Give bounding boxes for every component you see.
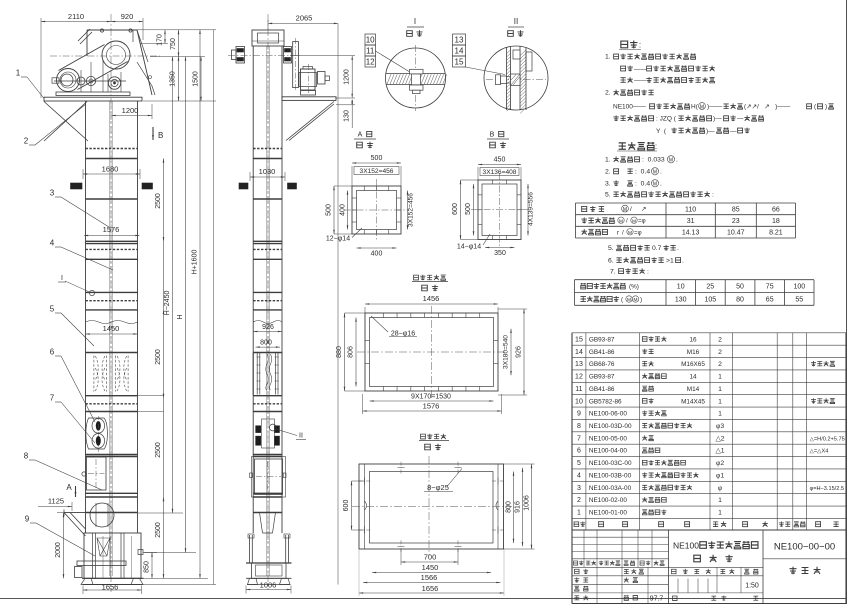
svg-text:926: 926 — [262, 324, 274, 331]
svg-text:M: M — [632, 218, 636, 224]
svg-text:φ3: φ3 — [716, 423, 724, 430]
svg-text:/: / — [630, 206, 632, 213]
svg-text:: 0.4: : 0.4 — [635, 169, 650, 176]
svg-text:0.7: 0.7 — [652, 245, 662, 252]
svg-text:↗: ↗ — [641, 206, 646, 213]
svg-text:NE100-03A-00: NE100-03A-00 — [589, 485, 632, 492]
svg-text:880: 880 — [336, 346, 343, 358]
svg-text:1: 1 — [718, 398, 722, 405]
svg-text:II: II — [514, 17, 518, 26]
svg-text:14−φ14: 14−φ14 — [457, 244, 481, 251]
svg-text:65: 65 — [766, 296, 774, 303]
svg-text:105: 105 — [704, 296, 716, 303]
svg-text:8−φ25: 8−φ25 — [427, 483, 449, 492]
svg-text:2500: 2500 — [155, 522, 162, 538]
svg-text:8: 8 — [577, 423, 581, 430]
svg-text::: : — [639, 41, 641, 50]
svg-text:6: 6 — [577, 448, 581, 455]
svg-text:——: —— — [634, 66, 647, 73]
svg-text:1200: 1200 — [344, 69, 351, 85]
svg-text:1: 1 — [718, 411, 722, 418]
svg-text:9X170=1530: 9X170=1530 — [411, 394, 451, 401]
svg-text:M: M — [653, 182, 657, 188]
svg-text:): ) — [825, 104, 827, 111]
svg-text:13: 13 — [455, 36, 464, 45]
svg-text:——: —— — [634, 77, 647, 84]
svg-text:23: 23 — [732, 218, 740, 225]
svg-text:1:50: 1:50 — [745, 583, 759, 590]
svg-text:φ=H−3.15/2.5: φ=H−3.15/2.5 — [810, 486, 844, 492]
svg-text:806: 806 — [348, 346, 355, 358]
svg-text:1456: 1456 — [423, 294, 440, 303]
svg-text:16: 16 — [689, 336, 697, 343]
svg-text:NE100: NE100 — [673, 541, 699, 551]
svg-text:=φ: =φ — [638, 218, 646, 225]
svg-text:H+1600: H+1600 — [192, 250, 199, 275]
svg-text:1125: 1125 — [48, 497, 64, 506]
svg-text:800: 800 — [260, 340, 272, 347]
svg-text:1006: 1006 — [260, 581, 277, 590]
svg-text:NE100——: NE100—— — [613, 104, 646, 111]
svg-text:110: 110 — [685, 206, 696, 213]
svg-text:3: 3 — [50, 189, 55, 198]
svg-text:15: 15 — [575, 336, 583, 343]
svg-text:1: 1 — [577, 510, 581, 517]
svg-text:1: 1 — [718, 510, 722, 517]
svg-text:7: 7 — [50, 394, 55, 403]
svg-text:M: M — [653, 170, 657, 176]
svg-text:350: 350 — [494, 250, 506, 257]
svg-text:r: r — [617, 229, 619, 236]
svg-text:GB5782-86: GB5782-86 — [589, 398, 622, 405]
svg-text:3X136=408: 3X136=408 — [483, 169, 517, 176]
svg-text:NE100-03C-00: NE100-03C-00 — [589, 460, 632, 467]
svg-text:2: 2 — [718, 349, 722, 356]
svg-text:2065: 2065 — [296, 14, 313, 23]
svg-text:II: II — [299, 433, 303, 440]
svg-text:3: 3 — [577, 485, 581, 492]
svg-text:1576: 1576 — [103, 225, 120, 234]
svg-text:2: 2 — [24, 137, 29, 146]
svg-text:4: 4 — [50, 239, 55, 248]
svg-text:): ) — [640, 296, 642, 303]
svg-text:.: . — [676, 157, 678, 164]
svg-text:△2: △2 — [715, 435, 724, 442]
svg-text:12: 12 — [366, 58, 375, 67]
svg-text:1.: 1. — [605, 54, 611, 61]
svg-text:B: B — [490, 132, 495, 139]
svg-text:920: 920 — [121, 12, 134, 21]
svg-text:750: 750 — [170, 38, 177, 50]
svg-text:M: M — [634, 297, 638, 303]
svg-text:600: 600 — [452, 203, 459, 215]
svg-text:15: 15 — [455, 58, 464, 67]
svg-text:500: 500 — [326, 204, 333, 216]
svg-text:1656: 1656 — [102, 582, 119, 591]
svg-text:10: 10 — [575, 398, 583, 405]
svg-text:1566: 1566 — [421, 573, 438, 582]
svg-text:1: 1 — [718, 374, 722, 381]
svg-text:800: 800 — [506, 501, 513, 513]
svg-text:80: 80 — [736, 296, 744, 303]
svg-text:M: M — [627, 297, 631, 303]
svg-text:—: — — [737, 116, 744, 123]
svg-text:12: 12 — [575, 374, 583, 381]
svg-text:500: 500 — [371, 155, 383, 162]
svg-text:170: 170 — [157, 34, 164, 46]
svg-text:NE100-05-00: NE100-05-00 — [589, 435, 627, 442]
svg-text:7.: 7. — [610, 268, 616, 275]
svg-text:130: 130 — [344, 110, 351, 122]
svg-text:NE100-01-00: NE100-01-00 — [589, 510, 627, 517]
svg-text::: : — [647, 268, 649, 275]
svg-text:600: 600 — [343, 500, 350, 512]
svg-text:1: 1 — [16, 69, 21, 78]
svg-text:9: 9 — [577, 411, 581, 418]
svg-text:9: 9 — [25, 515, 30, 524]
svg-text:500: 500 — [465, 203, 472, 215]
svg-text:14: 14 — [455, 47, 464, 56]
svg-text:55: 55 — [795, 296, 803, 303]
svg-text:/: / — [626, 218, 628, 225]
svg-text:850: 850 — [144, 561, 151, 573]
svg-text:GB41-86: GB41-86 — [589, 349, 615, 356]
svg-text:)——: )—— — [707, 104, 723, 111]
svg-text:: JZQ (: : JZQ ( — [656, 116, 677, 123]
svg-text:(%): (%) — [629, 283, 639, 290]
svg-text:△=H/0.2+5.75: △=H/0.2+5.75 — [810, 436, 845, 442]
svg-text:I: I — [414, 17, 416, 26]
svg-text:.: . — [660, 181, 662, 188]
svg-text:.: . — [677, 245, 679, 252]
svg-text:)—: )— — [713, 116, 722, 123]
svg-text:GB68-76: GB68-76 — [589, 361, 615, 368]
svg-text:φ1: φ1 — [716, 472, 724, 479]
svg-text:GB93-87: GB93-87 — [589, 374, 615, 381]
svg-text:130: 130 — [675, 296, 687, 303]
svg-text:5.: 5. — [605, 192, 611, 199]
svg-text:NE100−00−00: NE100−00−00 — [774, 542, 835, 553]
svg-text:1200: 1200 — [122, 106, 139, 115]
svg-text:2500: 2500 — [155, 442, 162, 458]
svg-text:10: 10 — [677, 284, 685, 291]
svg-text:1: 1 — [718, 497, 722, 504]
svg-text:H(: H( — [691, 104, 699, 111]
svg-text:4X139=556: 4X139=556 — [528, 192, 535, 226]
svg-text:13: 13 — [575, 361, 583, 368]
svg-text:M: M — [700, 104, 704, 110]
svg-text:2500: 2500 — [155, 349, 162, 365]
svg-text:4: 4 — [577, 472, 581, 479]
svg-text:M14: M14 — [687, 386, 700, 393]
svg-text:H−2450: H−2450 — [164, 291, 171, 316]
svg-text:3.: 3. — [605, 181, 611, 188]
svg-text:.: . — [660, 169, 662, 176]
svg-text:1: 1 — [718, 386, 722, 393]
svg-text:A: A — [358, 132, 363, 139]
svg-text:φ: φ — [718, 485, 723, 492]
svg-text:NE100-02-00: NE100-02-00 — [589, 497, 627, 504]
svg-text:50: 50 — [736, 284, 744, 291]
svg-text:450: 450 — [494, 157, 506, 164]
svg-text:=φ: =φ — [634, 229, 642, 236]
svg-text:31: 31 — [687, 218, 695, 225]
svg-text:14: 14 — [575, 349, 583, 356]
svg-text:2110: 2110 — [68, 12, 84, 21]
svg-text:M: M — [623, 207, 627, 213]
svg-text:M16: M16 — [687, 349, 700, 356]
svg-text:700: 700 — [424, 553, 437, 562]
svg-text:12−φ14: 12−φ14 — [326, 236, 350, 243]
svg-text:φ2: φ2 — [716, 460, 724, 467]
svg-text:>1: >1 — [666, 257, 674, 264]
svg-text:8.21: 8.21 — [769, 230, 783, 237]
svg-text:2.: 2. — [605, 90, 611, 97]
svg-text:1500: 1500 — [193, 71, 200, 87]
svg-text:97.7: 97.7 — [650, 595, 664, 602]
svg-text:1.: 1. — [605, 157, 611, 164]
svg-text:3X152=456: 3X152=456 — [408, 193, 415, 227]
svg-text:NE100-04-00: NE100-04-00 — [589, 448, 627, 455]
svg-text:1006: 1006 — [524, 495, 531, 511]
svg-text:—: — — [730, 128, 737, 135]
svg-text:2000: 2000 — [55, 542, 62, 558]
svg-text::: : — [712, 192, 714, 199]
svg-text:)—: )— — [706, 128, 715, 135]
svg-text:8: 8 — [24, 452, 29, 461]
svg-text:1030: 1030 — [259, 167, 276, 176]
svg-text:6: 6 — [50, 348, 55, 357]
svg-text:3X152=456: 3X152=456 — [360, 168, 394, 175]
svg-text:△1: △1 — [715, 448, 724, 455]
svg-text:GB93-87: GB93-87 — [589, 336, 615, 343]
svg-text:2: 2 — [718, 336, 722, 343]
svg-text:M16X65: M16X65 — [681, 361, 705, 368]
svg-text:NE100-06-00: NE100-06-00 — [589, 411, 627, 418]
svg-text:926: 926 — [516, 346, 523, 358]
svg-text:.: . — [682, 257, 684, 264]
svg-text:A: A — [66, 483, 72, 492]
svg-text:85: 85 — [732, 206, 740, 213]
svg-text:△=△X4: △=△X4 — [810, 449, 829, 455]
svg-text:: 0.4: : 0.4 — [635, 181, 650, 188]
svg-text:NE100-03D-00: NE100-03D-00 — [589, 423, 632, 430]
svg-text:11: 11 — [575, 386, 582, 393]
svg-text:GB41-86: GB41-86 — [589, 386, 615, 393]
svg-text:M: M — [628, 230, 632, 236]
svg-text:5.: 5. — [608, 245, 614, 252]
svg-text:1450: 1450 — [422, 563, 439, 572]
svg-text:1680: 1680 — [102, 165, 119, 174]
svg-text:2: 2 — [718, 361, 722, 368]
svg-text:11: 11 — [366, 47, 375, 56]
svg-text:: 0.033: : 0.033 — [642, 157, 665, 164]
svg-text:916: 916 — [515, 501, 522, 513]
svg-text:3X180=540: 3X180=540 — [503, 335, 510, 369]
svg-text:5: 5 — [50, 305, 55, 314]
svg-text:14.13: 14.13 — [682, 230, 700, 237]
svg-text:2: 2 — [577, 497, 581, 504]
svg-text:400: 400 — [371, 251, 383, 258]
svg-text:I: I — [61, 275, 63, 282]
svg-text::: : — [655, 142, 657, 151]
svg-text:14: 14 — [689, 374, 697, 381]
svg-text:Y (: Y ( — [656, 128, 667, 135]
svg-text:7: 7 — [577, 435, 581, 442]
svg-text:66: 66 — [772, 206, 780, 213]
svg-text:75: 75 — [766, 284, 774, 291]
svg-text:H: H — [177, 314, 184, 319]
svg-text:M: M — [669, 158, 673, 164]
svg-text:2.: 2. — [605, 169, 611, 176]
svg-text:2500: 2500 — [155, 193, 162, 209]
svg-text:25: 25 — [706, 284, 714, 291]
svg-text:(↗↗/ ↗ )——: (↗↗/ ↗ )—— — [744, 104, 791, 111]
svg-text:M: M — [619, 218, 623, 224]
svg-text:400: 400 — [340, 204, 347, 216]
svg-text:/: / — [622, 229, 624, 236]
svg-text:1656: 1656 — [422, 584, 439, 593]
svg-text:NE100-03B-00: NE100-03B-00 — [589, 472, 632, 479]
svg-text:1450: 1450 — [103, 324, 120, 333]
svg-text:18: 18 — [772, 218, 780, 225]
svg-text:6.: 6. — [608, 257, 614, 264]
svg-text:M14X45: M14X45 — [681, 398, 705, 405]
svg-text:10: 10 — [366, 36, 375, 45]
svg-text:B: B — [158, 131, 163, 140]
svg-text:1576: 1576 — [423, 402, 440, 411]
svg-text:100: 100 — [793, 284, 805, 291]
svg-text:5: 5 — [577, 460, 581, 467]
svg-text:10.47: 10.47 — [727, 230, 745, 237]
svg-text:1350: 1350 — [170, 71, 177, 87]
